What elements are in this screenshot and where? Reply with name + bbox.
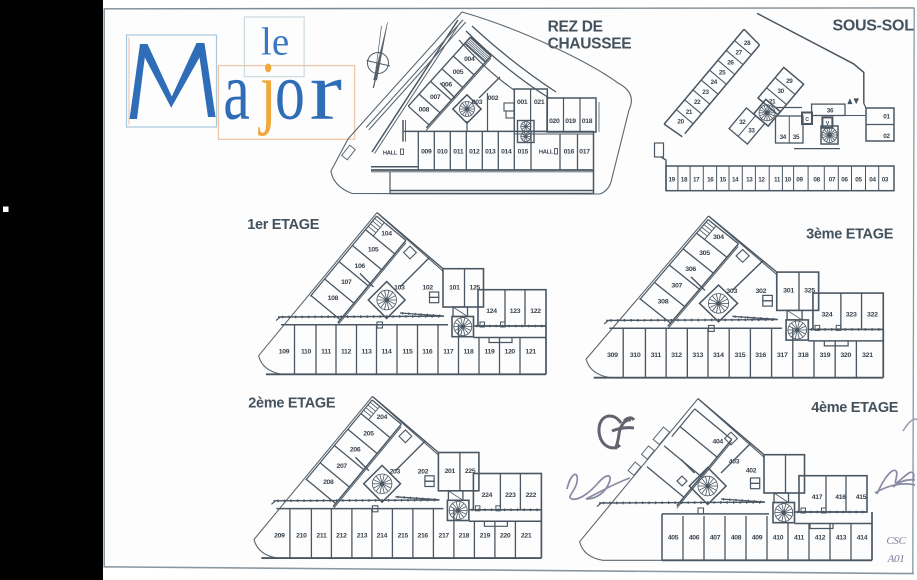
svg-text:13: 13 xyxy=(746,177,753,184)
svg-text:218: 218 xyxy=(459,532,470,539)
svg-text:015: 015 xyxy=(518,148,529,155)
svg-text:REZ DE: REZ DE xyxy=(548,18,603,35)
svg-text:25: 25 xyxy=(719,69,726,76)
svg-text:408: 408 xyxy=(731,535,742,542)
svg-text:316: 316 xyxy=(755,352,766,359)
svg-text:16: 16 xyxy=(707,177,714,184)
svg-text:315: 315 xyxy=(735,352,746,359)
svg-text:3ème ETAGE: 3ème ETAGE xyxy=(806,226,894,242)
svg-text:322: 322 xyxy=(867,311,878,318)
svg-text:08: 08 xyxy=(813,177,820,184)
svg-text:208: 208 xyxy=(323,479,334,486)
svg-text:414: 414 xyxy=(857,535,868,542)
svg-text:112: 112 xyxy=(341,349,352,356)
svg-text:415: 415 xyxy=(856,494,867,501)
svg-text:010: 010 xyxy=(437,148,448,155)
svg-text:206: 206 xyxy=(350,447,361,454)
svg-text:319: 319 xyxy=(819,352,830,359)
svg-text:4ème ETAGE: 4ème ETAGE xyxy=(811,400,899,416)
svg-text:o: o xyxy=(275,45,305,137)
svg-text:303: 303 xyxy=(726,288,737,295)
svg-text:410: 410 xyxy=(773,535,784,542)
svg-text:308: 308 xyxy=(658,299,669,306)
svg-text:107: 107 xyxy=(341,279,352,286)
svg-text:003: 003 xyxy=(472,99,483,106)
svg-text:20: 20 xyxy=(677,119,684,126)
svg-text:402: 402 xyxy=(746,468,757,475)
svg-text:106: 106 xyxy=(354,263,365,270)
svg-text:411: 411 xyxy=(794,535,805,542)
svg-text:110: 110 xyxy=(301,349,312,356)
svg-text:122: 122 xyxy=(530,308,541,315)
svg-text:113: 113 xyxy=(362,349,373,356)
svg-text:108: 108 xyxy=(328,295,339,302)
svg-text:222: 222 xyxy=(526,492,537,499)
svg-text:101: 101 xyxy=(449,284,460,291)
svg-text:016: 016 xyxy=(564,148,575,155)
svg-text:01: 01 xyxy=(883,114,890,121)
svg-text:115: 115 xyxy=(402,349,413,356)
svg-text:021: 021 xyxy=(534,99,545,106)
svg-text:34: 34 xyxy=(780,134,787,141)
svg-text:29: 29 xyxy=(786,78,793,85)
svg-text:21: 21 xyxy=(686,109,693,116)
svg-text:205: 205 xyxy=(363,430,374,437)
svg-text:202: 202 xyxy=(418,468,429,475)
svg-text:203: 203 xyxy=(390,468,401,475)
svg-text:05: 05 xyxy=(855,177,862,184)
svg-text:j: j xyxy=(257,45,276,137)
svg-text:30: 30 xyxy=(777,88,784,95)
svg-text:317: 317 xyxy=(777,352,788,359)
svg-text:302: 302 xyxy=(755,288,766,295)
svg-text:216: 216 xyxy=(417,532,428,539)
svg-text:11: 11 xyxy=(774,177,781,184)
svg-text:27: 27 xyxy=(735,50,742,57)
svg-text:211: 211 xyxy=(316,532,327,539)
svg-text:24: 24 xyxy=(711,79,718,86)
svg-text:304: 304 xyxy=(713,234,724,241)
svg-text:02: 02 xyxy=(883,133,890,140)
svg-text:416: 416 xyxy=(835,494,846,501)
svg-text:412: 412 xyxy=(815,535,826,542)
svg-text:123: 123 xyxy=(510,308,521,315)
svg-text:012: 012 xyxy=(469,148,480,155)
svg-text:118: 118 xyxy=(463,349,474,356)
svg-text:22: 22 xyxy=(694,99,701,106)
svg-text:220: 220 xyxy=(500,532,511,539)
svg-text:204: 204 xyxy=(377,414,388,421)
svg-text:311: 311 xyxy=(651,352,662,359)
svg-text:008: 008 xyxy=(419,107,430,114)
svg-text:307: 307 xyxy=(671,282,682,289)
svg-text:33: 33 xyxy=(748,128,755,135)
svg-text:201: 201 xyxy=(445,468,456,475)
svg-text:213: 213 xyxy=(357,532,368,539)
svg-text:35: 35 xyxy=(793,134,800,141)
svg-text:116: 116 xyxy=(422,349,433,356)
svg-text:406: 406 xyxy=(689,535,700,542)
svg-text:a: a xyxy=(223,45,250,137)
svg-text:209: 209 xyxy=(274,532,285,539)
svg-text:04: 04 xyxy=(869,177,876,184)
svg-text:26: 26 xyxy=(727,60,734,67)
svg-text:313: 313 xyxy=(692,352,703,359)
svg-text:017: 017 xyxy=(579,148,590,155)
svg-text:409: 409 xyxy=(752,535,763,542)
svg-text:405: 405 xyxy=(668,535,679,542)
svg-text:217: 217 xyxy=(438,532,449,539)
svg-text:014: 014 xyxy=(501,148,512,155)
svg-text:r: r xyxy=(310,45,342,137)
svg-text:006: 006 xyxy=(441,81,452,88)
svg-text:104: 104 xyxy=(381,230,392,237)
svg-text:23: 23 xyxy=(702,89,709,96)
svg-text:17: 17 xyxy=(693,177,700,184)
svg-text:102: 102 xyxy=(422,285,433,292)
svg-text:32: 32 xyxy=(739,119,746,126)
svg-text:404: 404 xyxy=(712,438,723,445)
svg-text:215: 215 xyxy=(398,532,409,539)
svg-text:19: 19 xyxy=(668,177,675,184)
svg-text:007: 007 xyxy=(430,94,441,101)
svg-text:119: 119 xyxy=(484,349,495,356)
svg-text:14: 14 xyxy=(732,177,739,184)
svg-text:214: 214 xyxy=(377,532,388,539)
svg-text:223: 223 xyxy=(505,492,516,499)
svg-text:301: 301 xyxy=(783,288,794,295)
svg-text:413: 413 xyxy=(836,535,847,542)
svg-text:305: 305 xyxy=(699,250,710,257)
svg-text:09: 09 xyxy=(796,177,803,184)
svg-text:221: 221 xyxy=(521,532,532,539)
svg-text:12: 12 xyxy=(758,177,765,184)
svg-text:117: 117 xyxy=(443,349,454,356)
svg-text:111: 111 xyxy=(321,349,331,356)
svg-text:004: 004 xyxy=(464,56,475,63)
svg-text:105: 105 xyxy=(368,247,379,254)
svg-text:10: 10 xyxy=(784,177,791,184)
svg-text:SOUS-SOL: SOUS-SOL xyxy=(833,18,915,35)
svg-text:07: 07 xyxy=(829,177,836,184)
svg-text:018: 018 xyxy=(582,118,593,125)
svg-text:CSC: CSC xyxy=(886,535,906,547)
svg-text:109: 109 xyxy=(279,349,290,356)
svg-text:019: 019 xyxy=(565,118,576,125)
svg-text:309: 309 xyxy=(607,352,618,359)
svg-text:321: 321 xyxy=(862,352,873,359)
svg-text:15: 15 xyxy=(720,177,727,184)
svg-text:417: 417 xyxy=(812,494,823,501)
svg-text:323: 323 xyxy=(846,311,857,318)
svg-text:124: 124 xyxy=(486,308,497,315)
svg-text:011: 011 xyxy=(453,148,464,155)
svg-text:219: 219 xyxy=(480,532,491,539)
svg-text:1er ETAGE: 1er ETAGE xyxy=(247,217,320,233)
svg-text:2ème ETAGE: 2ème ETAGE xyxy=(248,396,336,412)
svg-text:A01: A01 xyxy=(887,553,905,565)
svg-text:407: 407 xyxy=(710,535,721,542)
svg-text:207: 207 xyxy=(336,463,347,470)
svg-text:320: 320 xyxy=(840,352,851,359)
svg-text:005: 005 xyxy=(453,69,464,76)
svg-text:121: 121 xyxy=(525,349,536,356)
svg-text:03: 03 xyxy=(882,177,889,184)
svg-text:18: 18 xyxy=(681,177,688,184)
svg-text:HALL: HALL xyxy=(383,150,398,156)
svg-text:114: 114 xyxy=(381,349,392,356)
svg-text:28: 28 xyxy=(744,40,751,47)
svg-text:020: 020 xyxy=(549,118,560,125)
svg-text:306: 306 xyxy=(685,266,696,273)
svg-text:103: 103 xyxy=(394,285,405,292)
svg-text:HALL: HALL xyxy=(539,149,554,155)
svg-text:06: 06 xyxy=(841,177,848,184)
svg-text:013: 013 xyxy=(485,148,496,155)
svg-text:312: 312 xyxy=(671,352,682,359)
svg-text:318: 318 xyxy=(798,352,809,359)
svg-text:224: 224 xyxy=(482,492,493,499)
svg-text:210: 210 xyxy=(296,532,307,539)
svg-text:36: 36 xyxy=(827,108,834,115)
svg-text:310: 310 xyxy=(630,352,641,359)
svg-text:314: 314 xyxy=(713,352,724,359)
svg-text:324: 324 xyxy=(822,311,833,318)
svg-text:001: 001 xyxy=(517,99,528,106)
svg-text:002: 002 xyxy=(488,95,499,102)
svg-text:212: 212 xyxy=(336,532,347,539)
svg-text:009: 009 xyxy=(421,148,432,155)
svg-text:120: 120 xyxy=(504,349,515,356)
